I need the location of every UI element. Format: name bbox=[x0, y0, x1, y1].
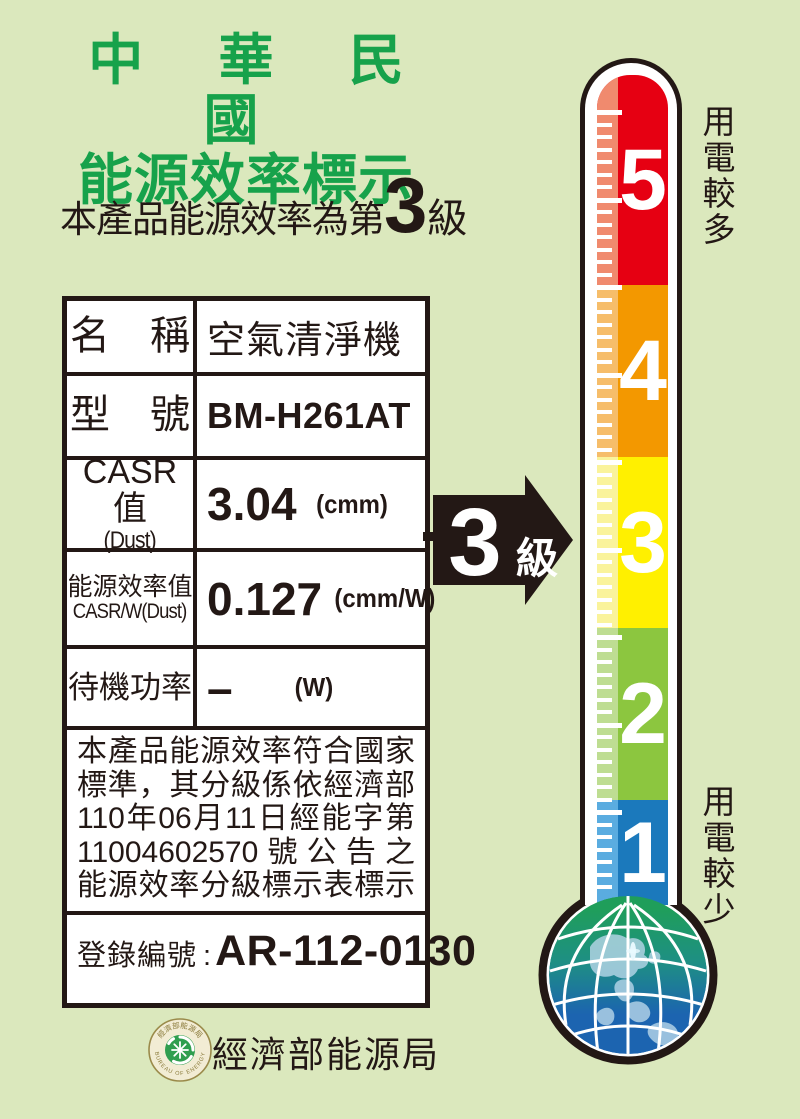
thermo-tick-minor bbox=[597, 160, 612, 164]
row-label: 待機功率 bbox=[68, 671, 192, 704]
globe bbox=[549, 896, 707, 1054]
registration-separator: : bbox=[203, 940, 211, 972]
thermo-tick-minor bbox=[597, 410, 612, 414]
thermo-level-number: 2 bbox=[618, 671, 668, 757]
casr-unit: (cmm) bbox=[316, 489, 388, 520]
row-sublabel: (Dust) bbox=[104, 528, 156, 554]
label-uses-more-power: 用電較多 bbox=[692, 104, 740, 248]
thermo-tick-minor bbox=[597, 698, 612, 702]
thermo-tick-minor bbox=[597, 798, 612, 802]
model-number: BM-H261AT bbox=[207, 395, 411, 437]
thermo-tick-major bbox=[592, 635, 622, 640]
thermo-tick-major bbox=[592, 373, 622, 378]
row-label: 型 號 bbox=[67, 376, 197, 456]
thermo-tick-minor bbox=[597, 598, 612, 602]
thermo-tick-major bbox=[592, 548, 622, 553]
thermo-tick-minor bbox=[597, 210, 612, 214]
bureau-of-energy-name: 經濟部能源局 bbox=[212, 1026, 440, 1078]
thermo-tick-minor bbox=[597, 760, 612, 764]
row-label: CASR值 bbox=[67, 454, 193, 527]
thermo-tick-minor bbox=[597, 860, 612, 864]
thermo-tick-minor bbox=[597, 185, 612, 189]
thermo-segment-1: 1 bbox=[597, 800, 668, 905]
row-label: 名 稱 bbox=[67, 301, 197, 372]
compliance-statement: 本產品能源效率符合國家 標準，其分級係依經濟部 110年06月11日經能字第 1… bbox=[67, 730, 425, 915]
bureau-of-energy-seal: 經濟部能源局 BUREAU OF ENERGY bbox=[146, 1016, 214, 1084]
thermo-tick-minor bbox=[597, 573, 612, 577]
thermo-tick-minor bbox=[597, 473, 612, 477]
thermo-tick-minor bbox=[597, 298, 612, 302]
table-row-efficiency: 能源效率值 CASR/W(Dust) 0.127 (cmm/W) bbox=[67, 552, 425, 649]
label-title: 中 華 民 國 能源效率標示 bbox=[58, 30, 434, 210]
thermo-tick-minor bbox=[597, 348, 612, 352]
thermo-tick-minor bbox=[597, 435, 612, 439]
thermo-tick-minor bbox=[597, 485, 612, 489]
thermo-tick-major bbox=[592, 810, 622, 815]
thermo-tick-major bbox=[592, 723, 622, 728]
thermo-tick-minor bbox=[597, 523, 612, 527]
thermo-segment-5: 5 bbox=[597, 75, 668, 285]
statement-line: 110年06月11日經能字第 bbox=[77, 802, 415, 836]
thermo-tick-minor bbox=[597, 173, 612, 177]
thermo-tick-minor bbox=[597, 398, 612, 402]
row-label: 能源效率值 bbox=[67, 574, 192, 601]
thermo-tick-minor bbox=[597, 735, 612, 739]
thermo-tick-minor bbox=[597, 423, 612, 427]
thermo-tick-minor bbox=[597, 748, 612, 752]
table-row-standby: 待機功率 – (W) bbox=[67, 649, 425, 730]
statement-line: 能源效率分級標示表標示 bbox=[77, 869, 415, 903]
thermo-level-number: 5 bbox=[618, 137, 668, 223]
thermo-tick-minor bbox=[597, 448, 612, 452]
thermo-segment-3: 3 bbox=[597, 457, 668, 628]
thermo-tick-minor bbox=[597, 660, 612, 664]
statement-line: 11004602570號公告之 bbox=[77, 836, 415, 870]
thermo-level-number: 4 bbox=[618, 328, 668, 414]
statement-line: 標準，其分級係依經濟部 bbox=[77, 769, 415, 803]
thermo-tick-minor bbox=[597, 135, 612, 139]
product-name: 空氣清淨機 bbox=[207, 309, 402, 364]
thermo-tick-minor bbox=[597, 648, 612, 652]
standby-value: – bbox=[207, 661, 233, 715]
efficiency-value: 0.127 bbox=[207, 572, 322, 626]
thermo-tick-minor bbox=[597, 885, 612, 889]
thermo-tick-major bbox=[592, 285, 622, 290]
rating-sentence: 本產品能源效率為第3級 bbox=[60, 186, 480, 244]
thermo-tick-minor bbox=[597, 248, 612, 252]
thermo-tick-minor bbox=[597, 785, 612, 789]
registration-label: 登錄編號 bbox=[77, 940, 197, 972]
standby-unit: (W) bbox=[294, 672, 333, 703]
thermo-tick-minor bbox=[597, 585, 612, 589]
registration-row: 登錄編號:AR-112-0130 bbox=[67, 915, 425, 1044]
thermo-tick-minor bbox=[597, 323, 612, 327]
thermo-tick-strip bbox=[597, 75, 618, 285]
seal-star bbox=[172, 1042, 188, 1058]
thermo-tick-minor bbox=[597, 710, 612, 714]
thermo-tick-minor bbox=[597, 673, 612, 677]
row-sublabel: CASR/W(Dust) bbox=[73, 601, 187, 624]
label-uses-less-power: 用電較少 bbox=[692, 784, 740, 928]
energy-label: 中 華 民 國 能源效率標示 本產品能源效率為第3級 名 稱 空氣清淨機 型 號… bbox=[0, 0, 800, 1119]
thermo-tick-minor bbox=[597, 148, 612, 152]
thermo-tick-strip bbox=[597, 457, 618, 628]
thermo-tick-minor bbox=[597, 123, 612, 127]
thermo-tick-minor bbox=[597, 235, 612, 239]
thermo-tick-minor bbox=[597, 773, 612, 777]
thermo-tick-major bbox=[592, 460, 622, 465]
efficiency-unit: (cmm/W) bbox=[335, 583, 436, 614]
registration-number: AR-112-0130 bbox=[215, 927, 476, 975]
thermo-tick-minor bbox=[597, 873, 612, 877]
thermo-tick-minor bbox=[597, 835, 612, 839]
thermo-tick-major bbox=[592, 110, 622, 115]
thermo-tick-minor bbox=[597, 223, 612, 227]
thermo-tick-major bbox=[592, 198, 622, 203]
thermo-tick-minor bbox=[597, 360, 612, 364]
thermo-tick-minor bbox=[597, 685, 612, 689]
title-line1: 中 華 民 國 bbox=[58, 30, 434, 150]
thermo-tick-minor bbox=[597, 535, 612, 539]
thermo-tick-minor bbox=[597, 335, 612, 339]
thermo-tick-strip bbox=[597, 800, 618, 905]
thermo-tick-minor bbox=[597, 273, 612, 277]
arrow-grade-number: 3 bbox=[448, 489, 501, 596]
table-row-casr: CASR值 (Dust) 3.04 (cmm) bbox=[67, 460, 425, 552]
thermo-tick-minor bbox=[597, 560, 612, 564]
thermo-tick-minor bbox=[597, 610, 612, 614]
thermo-tick-minor bbox=[597, 623, 612, 627]
thermo-tick-minor bbox=[597, 823, 612, 827]
spec-table: 名 稱 空氣清淨機 型 號 BM-H261AT CASR值 (Dust) 3.0… bbox=[62, 296, 430, 1008]
rating-arrow: 3 級 bbox=[423, 468, 583, 613]
rating-prefix: 本產品能源效率為第 bbox=[60, 199, 384, 240]
rating-arrow-shape: 3 級 bbox=[423, 468, 583, 613]
thermo-level-number: 1 bbox=[618, 810, 668, 896]
thermo-tick-minor bbox=[597, 510, 612, 514]
table-row-name: 名 稱 空氣清淨機 bbox=[67, 301, 425, 376]
thermo-tick-minor bbox=[597, 498, 612, 502]
casr-value: 3.04 bbox=[207, 477, 297, 531]
arrow-grade-suffix: 級 bbox=[516, 535, 558, 582]
statement-line: 本產品能源效率符合國家 bbox=[77, 735, 415, 769]
thermo-tick-minor bbox=[597, 310, 612, 314]
thermo-tick-minor bbox=[597, 385, 612, 389]
rating-value-big: 3 bbox=[384, 161, 427, 249]
rating-suffix: 級 bbox=[427, 197, 467, 241]
thermo-tick-minor bbox=[597, 848, 612, 852]
table-row-model: 型 號 BM-H261AT bbox=[67, 376, 425, 460]
thermo-level-number: 3 bbox=[618, 500, 668, 586]
thermo-tick-minor bbox=[597, 260, 612, 264]
